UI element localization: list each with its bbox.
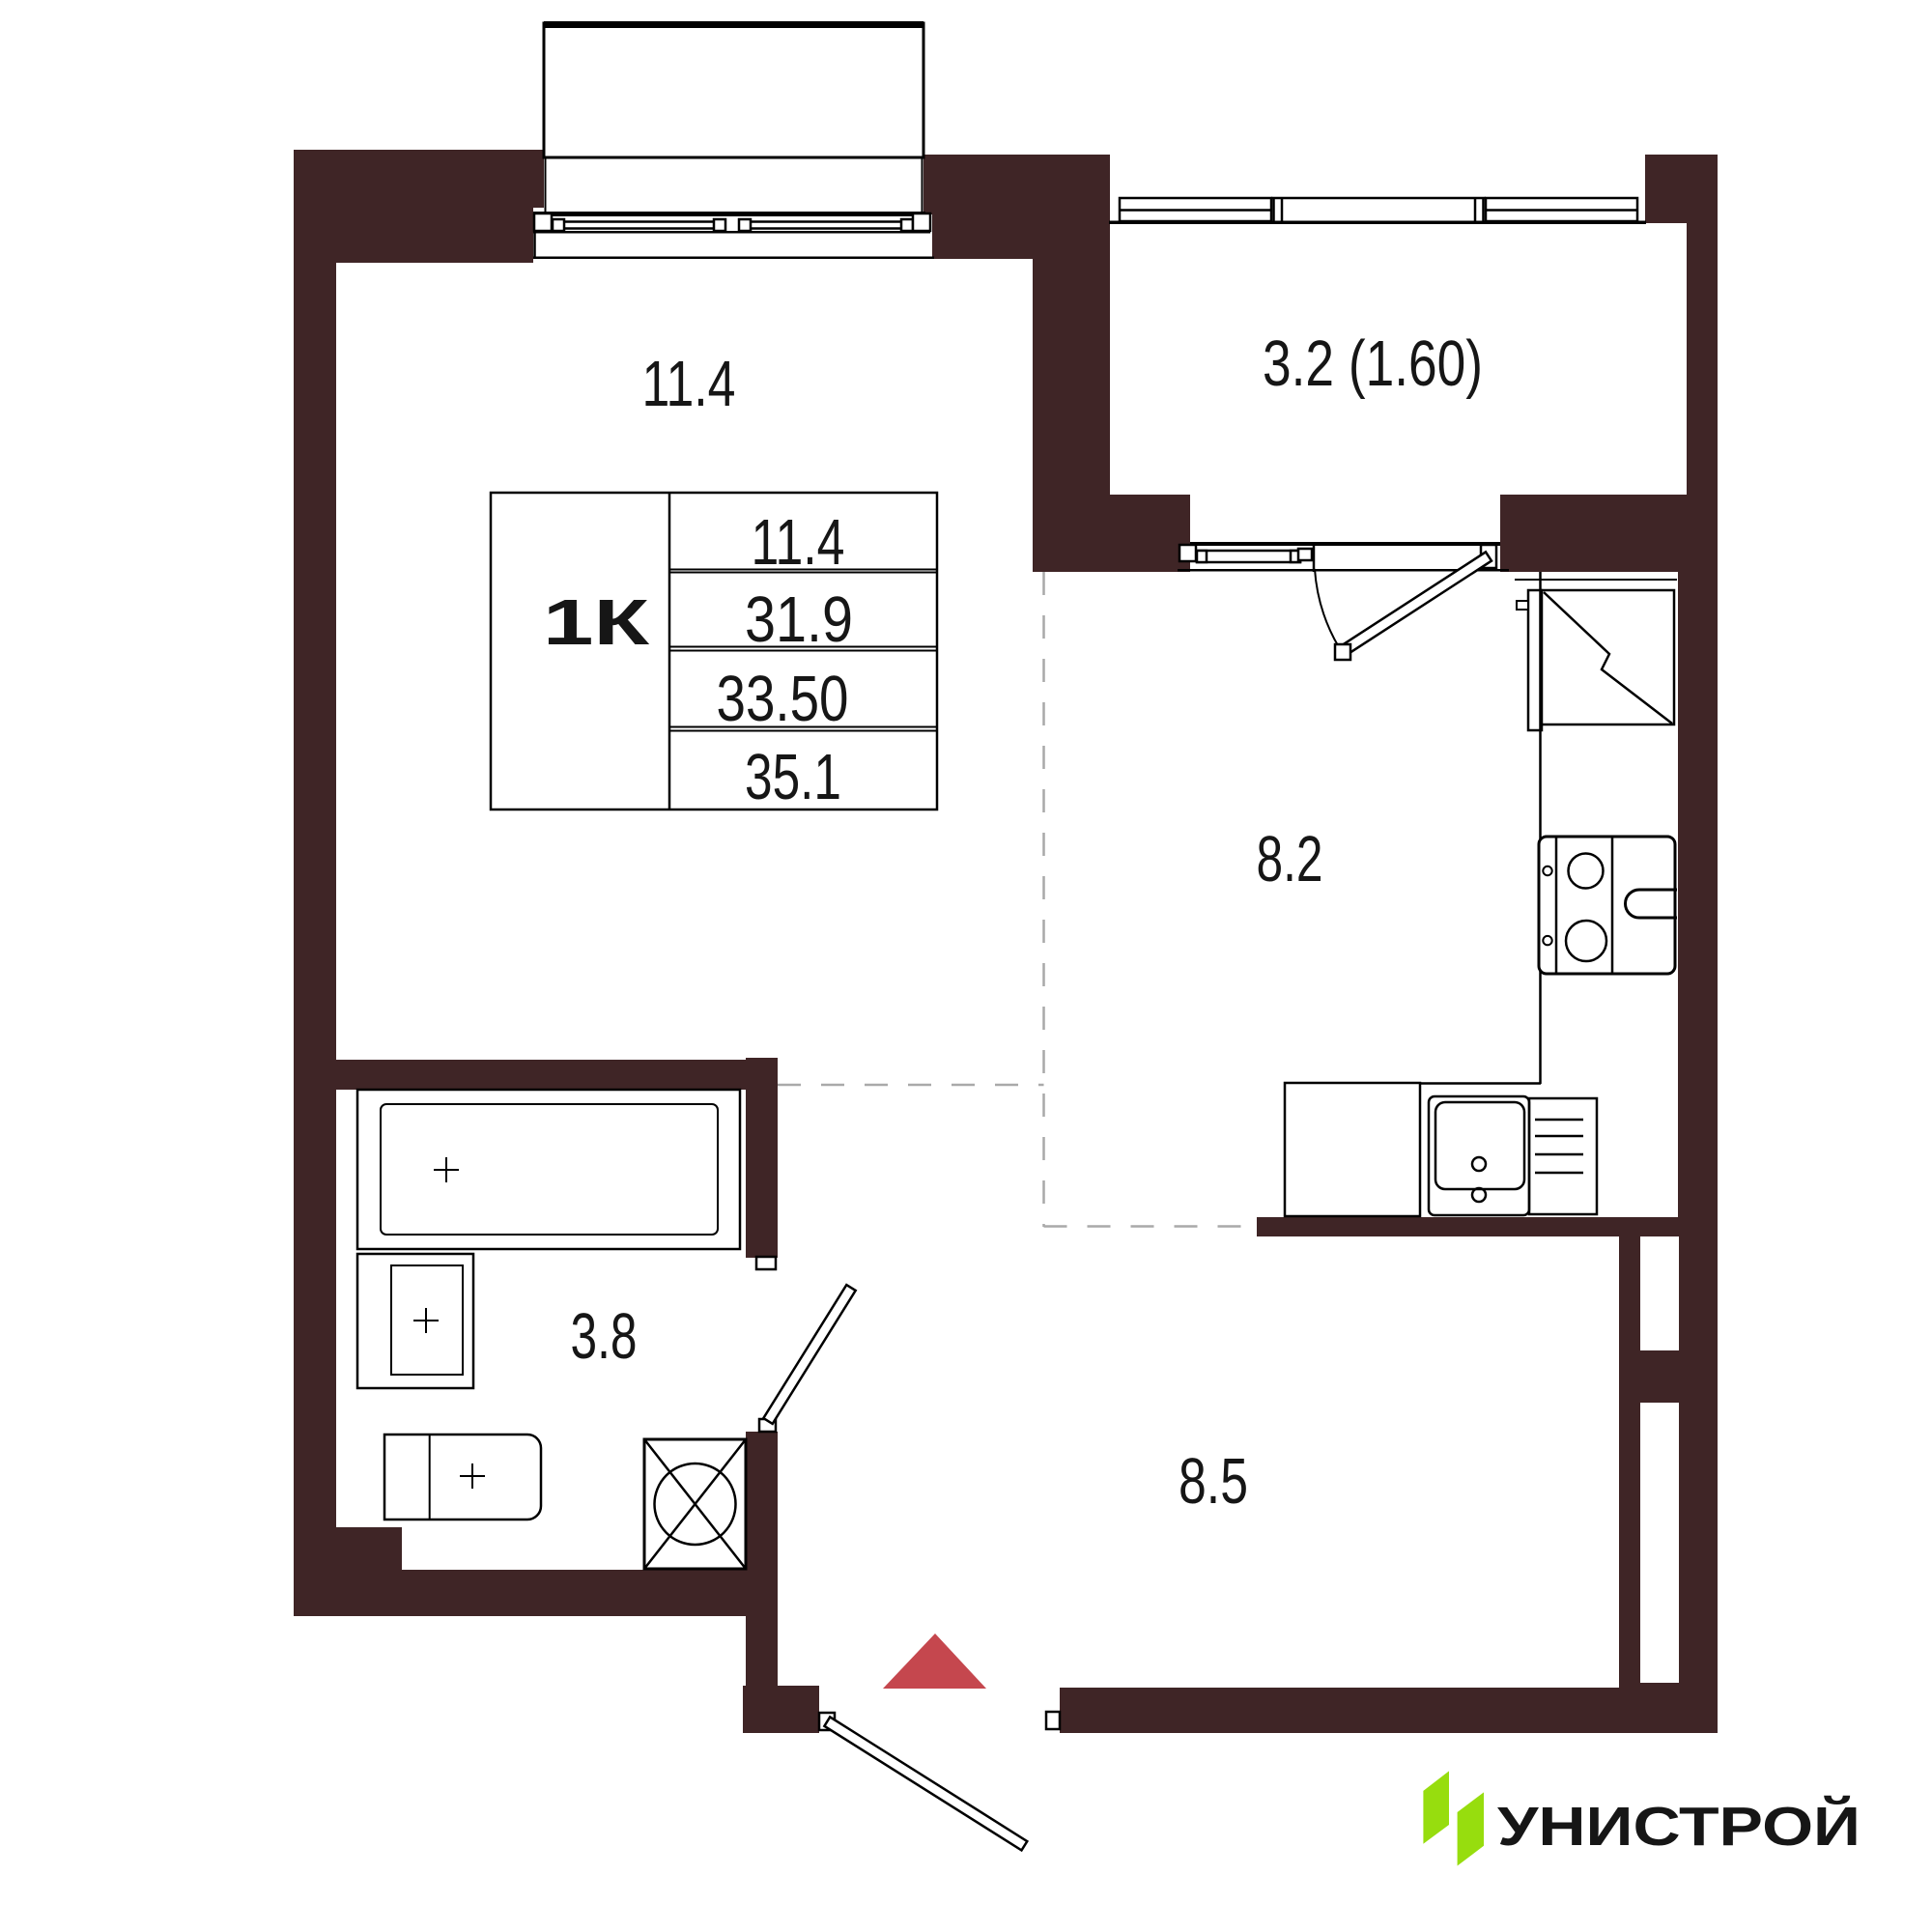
- svg-text:8.5: 8.5: [1179, 1445, 1248, 1518]
- svg-text:3.2 (1.60): 3.2 (1.60): [1263, 327, 1483, 400]
- svg-text:11.4: 11.4: [752, 506, 845, 579]
- svg-text:35.1: 35.1: [745, 741, 841, 813]
- svg-text:УНИСТРОЙ: УНИСТРОЙ: [1497, 1795, 1861, 1858]
- svg-text:3.8: 3.8: [571, 1300, 638, 1373]
- svg-text:31.9: 31.9: [745, 583, 853, 656]
- svg-text:8.2: 8.2: [1257, 823, 1323, 895]
- svg-text:33.50: 33.50: [717, 663, 849, 735]
- svg-text:1К: 1К: [543, 586, 649, 659]
- svg-text:11.4: 11.4: [642, 348, 736, 420]
